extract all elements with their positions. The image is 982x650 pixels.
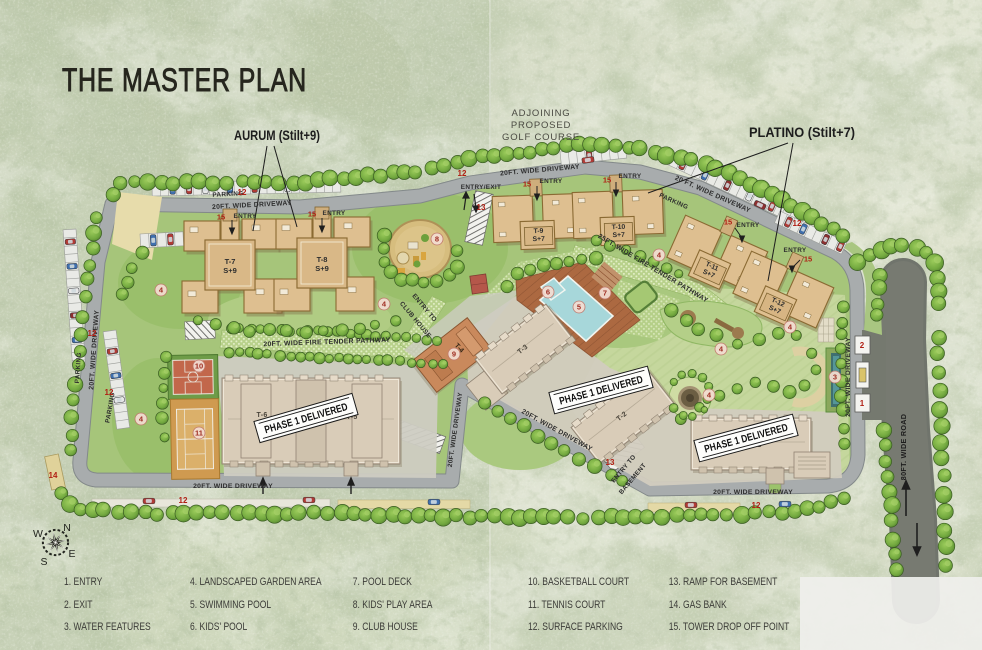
svg-text:12: 12 bbox=[793, 219, 802, 228]
svg-text:80FT. WIDE ROAD: 80FT. WIDE ROAD bbox=[899, 414, 908, 480]
svg-text:13: 13 bbox=[477, 203, 486, 212]
svg-text:20FT. WIDE DRIVEWAY: 20FT. WIDE DRIVEWAY bbox=[845, 337, 852, 417]
svg-text:PROPOSED: PROPOSED bbox=[511, 120, 571, 131]
svg-text:15: 15 bbox=[603, 176, 611, 185]
svg-text:5. SWIMMING POOL: 5. SWIMMING POOL bbox=[190, 599, 272, 611]
svg-text:T-10: T-10 bbox=[612, 224, 626, 231]
svg-text:10: 10 bbox=[195, 362, 203, 371]
svg-text:S+9: S+9 bbox=[315, 264, 329, 273]
svg-text:W: W bbox=[33, 528, 43, 540]
svg-text:5: 5 bbox=[577, 303, 581, 312]
svg-text:2. EXIT: 2. EXIT bbox=[64, 599, 93, 611]
svg-text:T-7: T-7 bbox=[225, 257, 236, 266]
svg-text:ENTRY: ENTRY bbox=[784, 247, 807, 254]
svg-text:15: 15 bbox=[724, 218, 732, 227]
svg-text:AURUM (Stilt+9): AURUM (Stilt+9) bbox=[234, 128, 320, 143]
svg-text:9. CLUB HOUSE: 9. CLUB HOUSE bbox=[353, 621, 419, 633]
svg-text:12: 12 bbox=[179, 496, 188, 505]
svg-text:12: 12 bbox=[458, 169, 467, 178]
svg-text:20FT. WIDE DRIVEWAY: 20FT. WIDE DRIVEWAY bbox=[193, 483, 273, 490]
svg-text:12. SURFACE PARKING: 12. SURFACE PARKING bbox=[528, 621, 623, 633]
svg-text:S+7: S+7 bbox=[532, 236, 545, 243]
svg-text:15: 15 bbox=[217, 213, 225, 222]
svg-text:14: 14 bbox=[49, 471, 58, 480]
svg-text:1. ENTRY: 1. ENTRY bbox=[64, 576, 103, 588]
svg-text:4. LANDSCAPED GARDEN AREA: 4. LANDSCAPED GARDEN AREA bbox=[190, 576, 322, 588]
svg-text:PLATINO (Stilt+7): PLATINO (Stilt+7) bbox=[749, 125, 855, 140]
svg-text:11. TENNIS COURT: 11. TENNIS COURT bbox=[528, 599, 605, 611]
svg-text:ENTRY: ENTRY bbox=[619, 173, 642, 180]
svg-text:S+7: S+7 bbox=[612, 232, 625, 239]
svg-text:T-9: T-9 bbox=[533, 228, 543, 235]
svg-text:15: 15 bbox=[804, 255, 812, 264]
svg-text:T-8: T-8 bbox=[317, 255, 328, 264]
svg-text:2: 2 bbox=[860, 341, 865, 350]
svg-text:13: 13 bbox=[606, 458, 615, 467]
svg-text:3. WATER FEATURES: 3. WATER FEATURES bbox=[64, 621, 151, 633]
svg-text:ENTRY: ENTRY bbox=[540, 178, 563, 185]
svg-text:E: E bbox=[68, 548, 75, 560]
svg-text:11: 11 bbox=[195, 429, 203, 438]
svg-text:7. POOL DECK: 7. POOL DECK bbox=[353, 576, 413, 588]
svg-text:1: 1 bbox=[860, 399, 865, 408]
svg-text:10. BASKETBALL COURT: 10. BASKETBALL COURT bbox=[528, 576, 629, 588]
svg-text:ADJOINING: ADJOINING bbox=[512, 108, 571, 119]
svg-text:3: 3 bbox=[833, 373, 837, 382]
svg-text:12: 12 bbox=[105, 388, 114, 397]
svg-text:8. KIDS' PLAY AREA: 8. KIDS' PLAY AREA bbox=[353, 599, 433, 611]
svg-text:ENTRY: ENTRY bbox=[234, 213, 257, 220]
svg-text:13. RAMP FOR BASEMENT: 13. RAMP FOR BASEMENT bbox=[669, 576, 778, 588]
svg-text:20FT. WIDE DRIVEWAY: 20FT. WIDE DRIVEWAY bbox=[713, 489, 793, 496]
svg-text:S: S bbox=[40, 556, 47, 568]
svg-text:8: 8 bbox=[435, 235, 439, 244]
svg-text:15. TOWER DROP OFF POINT: 15. TOWER DROP OFF POINT bbox=[669, 621, 790, 633]
svg-text:9: 9 bbox=[452, 350, 456, 359]
svg-text:7: 7 bbox=[603, 289, 607, 298]
svg-text:ENTRY: ENTRY bbox=[737, 222, 760, 229]
svg-text:12: 12 bbox=[238, 188, 247, 197]
svg-text:15: 15 bbox=[523, 180, 531, 189]
svg-text:S+9: S+9 bbox=[223, 266, 237, 275]
svg-text:ENTRY: ENTRY bbox=[323, 210, 346, 217]
svg-text:15: 15 bbox=[308, 210, 316, 219]
svg-text:12: 12 bbox=[88, 329, 97, 338]
svg-text:6: 6 bbox=[546, 288, 550, 297]
svg-text:GOLF COURSE: GOLF COURSE bbox=[502, 132, 580, 143]
svg-text:6. KIDS' POOL: 6. KIDS' POOL bbox=[190, 621, 248, 633]
svg-text:ENTRY/EXIT: ENTRY/EXIT bbox=[461, 184, 501, 191]
svg-text:THE MASTER PLAN: THE MASTER PLAN bbox=[62, 62, 307, 98]
svg-text:12: 12 bbox=[752, 501, 761, 510]
svg-text:N: N bbox=[63, 522, 71, 534]
svg-text:14. GAS BANK: 14. GAS BANK bbox=[669, 599, 727, 611]
